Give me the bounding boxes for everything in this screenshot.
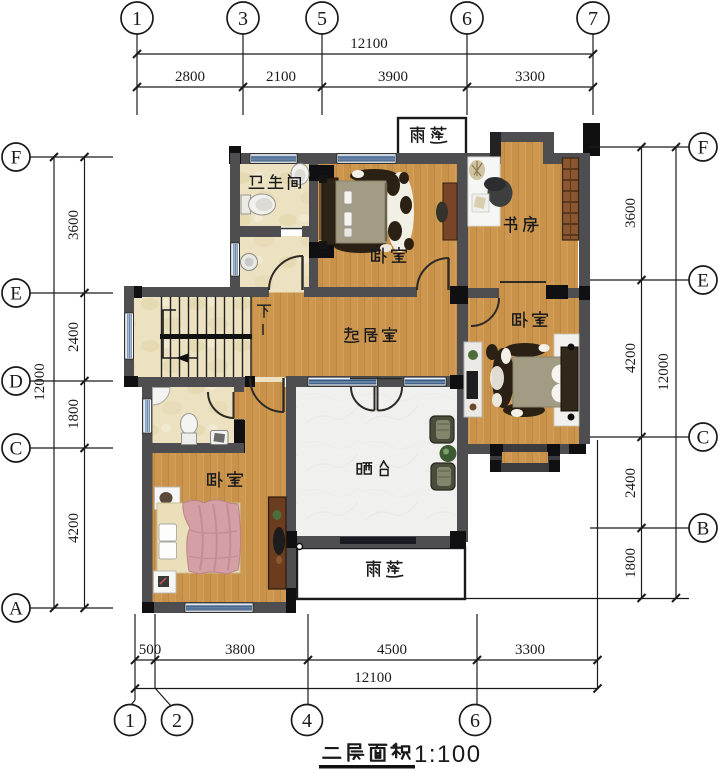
svg-text:6: 6 xyxy=(470,710,480,732)
svg-text:C: C xyxy=(10,439,23,460)
svg-text:3: 3 xyxy=(238,8,248,30)
svg-text:4200: 4200 xyxy=(66,513,82,543)
svg-text:12100: 12100 xyxy=(350,36,388,52)
svg-text:2400: 2400 xyxy=(623,468,639,498)
svg-text:12100: 12100 xyxy=(354,670,392,686)
svg-text:6: 6 xyxy=(462,8,472,30)
svg-text:2800: 2800 xyxy=(175,69,205,85)
svg-text:F: F xyxy=(698,138,709,159)
svg-text:4200: 4200 xyxy=(623,343,639,373)
svg-text:2: 2 xyxy=(172,710,182,732)
svg-text:1800: 1800 xyxy=(66,399,82,429)
svg-text:3600: 3600 xyxy=(623,198,639,228)
svg-text:12000: 12000 xyxy=(32,363,48,401)
svg-text:3300: 3300 xyxy=(515,69,545,85)
svg-text:E: E xyxy=(10,284,22,305)
svg-text:1: 1 xyxy=(132,8,142,30)
svg-text:1:100: 1:100 xyxy=(414,741,482,768)
svg-text:5: 5 xyxy=(317,8,327,30)
svg-text:3300: 3300 xyxy=(515,642,545,658)
svg-text:C: C xyxy=(697,428,710,449)
svg-text:3600: 3600 xyxy=(66,210,82,240)
svg-text:7: 7 xyxy=(588,8,598,30)
svg-text:E: E xyxy=(697,271,709,292)
svg-text:3900: 3900 xyxy=(378,69,408,85)
svg-text:F: F xyxy=(11,148,22,169)
svg-text:1800: 1800 xyxy=(623,548,639,578)
svg-text:2100: 2100 xyxy=(266,69,296,85)
svg-text:1: 1 xyxy=(125,710,135,732)
svg-text:B: B xyxy=(697,519,710,540)
svg-text:500: 500 xyxy=(139,642,162,658)
svg-text:2400: 2400 xyxy=(66,322,82,352)
svg-text:4: 4 xyxy=(302,710,312,732)
svg-text:D: D xyxy=(9,372,23,393)
svg-text:3800: 3800 xyxy=(225,642,255,658)
svg-text:12000: 12000 xyxy=(656,353,672,391)
svg-text:A: A xyxy=(9,599,23,620)
svg-text:4500: 4500 xyxy=(377,642,407,658)
